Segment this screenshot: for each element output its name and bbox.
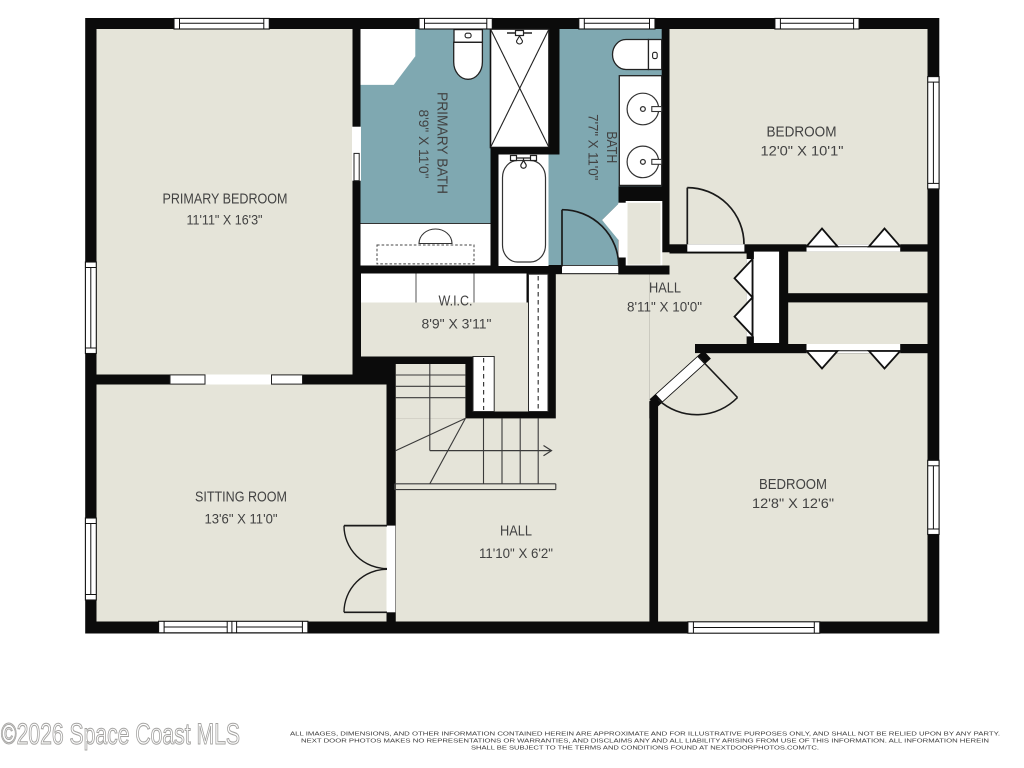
svg-text:11'10" X 6'2": 11'10" X 6'2" [479, 546, 553, 561]
svg-text:7'7" X 11'0": 7'7" X 11'0" [586, 114, 601, 180]
svg-text:BEDROOM: BEDROOM [759, 477, 827, 493]
svg-text:SITTING ROOM: SITTING ROOM [195, 490, 287, 506]
svg-text:PRIMARY BEDROOM: PRIMARY BEDROOM [163, 192, 288, 208]
svg-text:BATH: BATH [603, 131, 619, 163]
svg-text:13'6" X 11'0": 13'6" X 11'0" [205, 512, 278, 527]
svg-text:8'9" X 11'0": 8'9" X 11'0" [416, 110, 431, 179]
svg-text:HALL: HALL [649, 281, 681, 297]
svg-text:12'0" X 10'1": 12'0" X 10'1" [761, 144, 844, 159]
svg-text:12'8" X 12'6": 12'8" X 12'6" [752, 496, 834, 511]
svg-text:BEDROOM: BEDROOM [767, 125, 837, 141]
svg-text:11'11" X 16'3": 11'11" X 16'3" [187, 213, 263, 228]
svg-text:PRIMARY BATH: PRIMARY BATH [434, 92, 450, 194]
svg-text:NEXT DOOR PHOTOS MAKES NO REPR: NEXT DOOR PHOTOS MAKES NO REPRESENTATION… [301, 739, 989, 745]
svg-text:HALL: HALL [500, 524, 532, 540]
svg-text:8'9" X 3'11": 8'9" X 3'11" [422, 317, 492, 332]
svg-text:W.I.C.: W.I.C. [439, 294, 473, 310]
svg-text:SHALL BE SUBJECT TO THE TERMS: SHALL BE SUBJECT TO THE TERMS AND CONDIT… [471, 746, 819, 752]
svg-text:©2026 Space Coast MLS: ©2026 Space Coast MLS [1, 718, 240, 751]
svg-text:8'11" X 10'0": 8'11" X 10'0" [627, 300, 702, 315]
svg-text:ALL IMAGES, DIMENSIONS, AND OT: ALL IMAGES, DIMENSIONS, AND OTHER INFORM… [290, 732, 1000, 738]
